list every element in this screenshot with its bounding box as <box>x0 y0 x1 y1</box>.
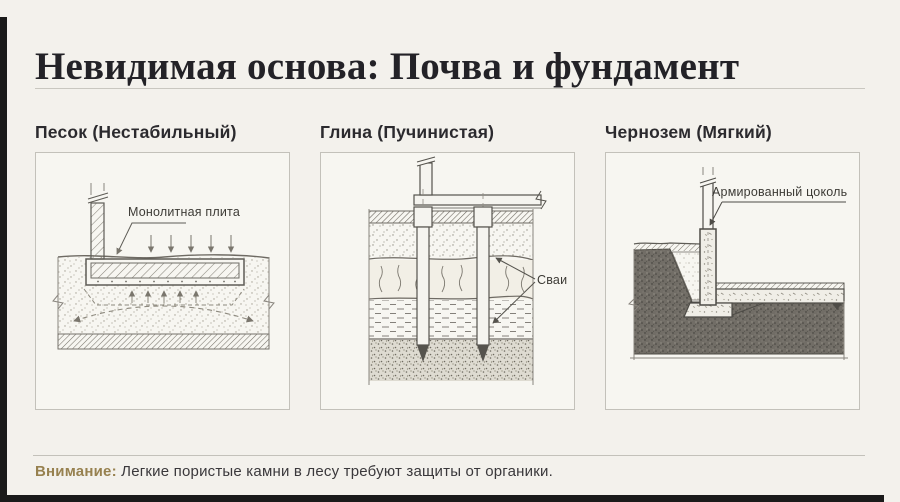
warning-note: Внимание: Легкие пористые камни в лесу т… <box>35 463 553 480</box>
panel-sand: Песок (Нестабильный) <box>35 122 290 410</box>
callout-piles: Сваи <box>537 273 567 287</box>
left-accent-bar <box>0 17 7 502</box>
title-divider <box>35 88 865 89</box>
infographic-page: Невидимая основа: Почва и фундамент Песо… <box>0 0 900 502</box>
callout-monolithic-slab: Монолитная плита <box>128 205 240 219</box>
panel-chernozem: Чернозем (Мягкий) <box>605 122 860 410</box>
panel-chernozem-diagram: Армированный цоколь <box>605 152 860 410</box>
bottom-accent-bar <box>0 495 884 502</box>
panel-chernozem-title: Чернозем (Мягкий) <box>605 122 860 143</box>
panel-sand-title: Песок (Нестабильный) <box>35 122 290 143</box>
warning-label: Внимание: <box>35 463 117 480</box>
page-title: Невидимая основа: Почва и фундамент <box>35 44 875 89</box>
panel-sand-diagram: Монолитная плита <box>35 152 290 410</box>
panel-clay: Глина (Пучинистая) <box>320 122 575 410</box>
monolithic-slab-drawing <box>36 153 289 409</box>
panel-clay-diagram: Сваи <box>320 152 575 410</box>
panel-clay-title: Глина (Пучинистая) <box>320 122 575 143</box>
footer-divider <box>33 455 865 456</box>
warning-text: Легкие пористые камни в лесу требуют защ… <box>121 463 553 480</box>
callout-reinforced-plinth: Армированный цоколь <box>712 185 847 199</box>
